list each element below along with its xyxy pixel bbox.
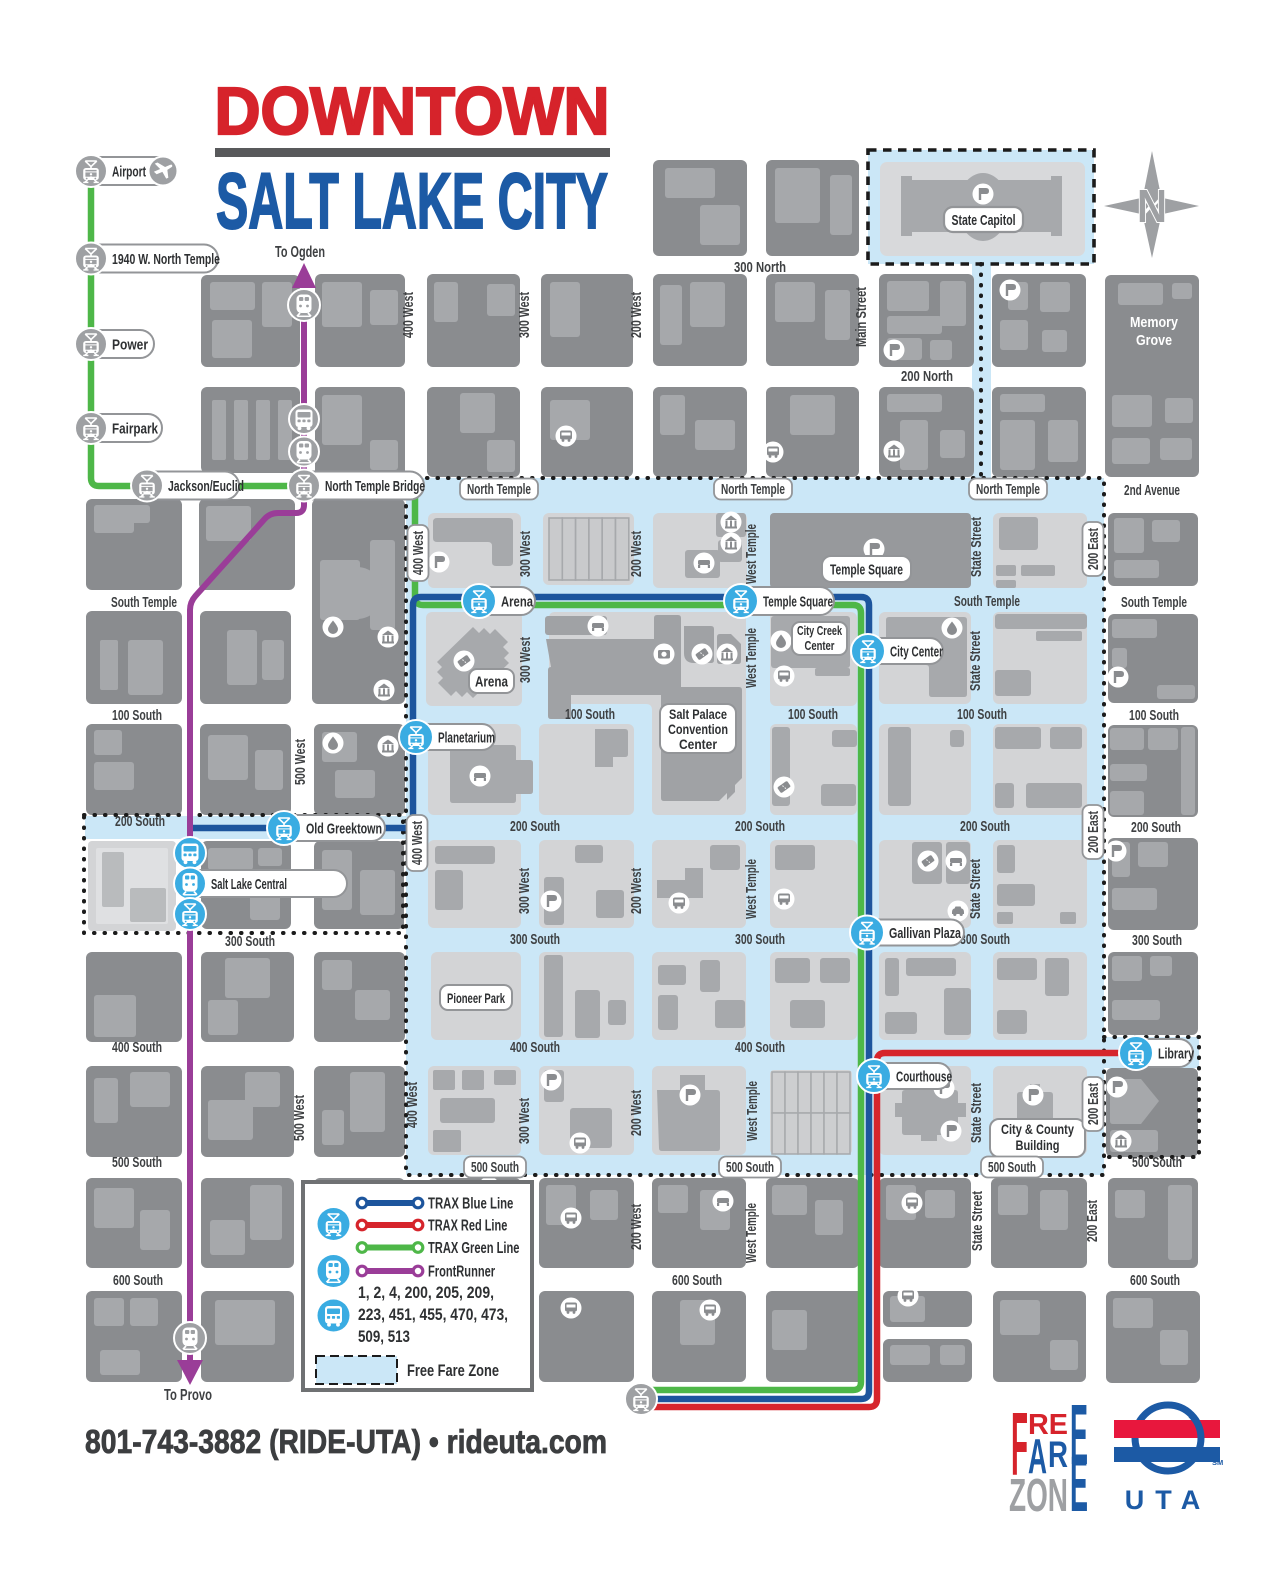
svg-text:Memory: Memory [1130,314,1179,331]
svg-text:100 South: 100 South [565,706,615,723]
svg-text:500 South: 500 South [471,1159,519,1176]
svg-text:300 West: 300 West [516,292,533,338]
svg-text:City Center: City Center [890,644,943,661]
svg-text:South Temple: South Temple [111,594,177,611]
svg-text:200 West: 200 West [628,1090,645,1136]
svg-text:Arena: Arena [501,594,533,611]
svg-text:West Temple: West Temple [743,524,760,584]
svg-text:FrontRunner: FrontRunner [428,1264,495,1281]
svg-text:South Temple: South Temple [1121,594,1187,611]
svg-text:UTA: UTA [1125,1485,1212,1515]
svg-text:200 South: 200 South [960,818,1010,835]
svg-text:300 South: 300 South [960,931,1010,948]
svg-text:600 South: 600 South [672,1272,722,1289]
svg-text:300 South: 300 South [735,931,785,948]
svg-text:500 West: 500 West [291,1095,308,1141]
svg-text:100 South: 100 South [788,706,838,723]
svg-text:1, 2, 4, 200, 205, 209,: 1, 2, 4, 200, 205, 209, [358,1283,494,1302]
svg-text:State Street: State Street [969,1191,986,1251]
svg-text:Center: Center [805,638,835,653]
svg-text:100 South: 100 South [112,707,162,724]
svg-text:300 South: 300 South [225,933,275,950]
svg-text:Free Fare Zone: Free Fare Zone [407,1361,499,1380]
svg-text:Salt Palace: Salt Palace [669,707,727,722]
svg-text:State Street: State Street [967,859,984,919]
svg-text:500 West: 500 West [292,739,309,785]
svg-text:E: E [1070,1439,1088,1528]
svg-text:200 West: 200 West [628,292,645,338]
svg-text:1940 W. North Temple: 1940 W. North Temple [112,251,220,268]
svg-text:Gallivan Plaza: Gallivan Plaza [889,925,961,942]
svg-text:Library: Library [1158,1046,1194,1063]
svg-text:To Ogden: To Ogden [275,244,325,261]
svg-text:West Temple: West Temple [743,859,760,919]
svg-text:400 West: 400 West [409,821,426,865]
svg-text:Building: Building [1016,1138,1060,1153]
svg-text:200 West: 200 West [628,1204,645,1250]
svg-text:200 East: 200 East [1085,811,1102,853]
svg-text:Pioneer Park: Pioneer Park [447,990,505,1006]
svg-text:500 South: 500 South [112,1154,162,1171]
svg-text:Fairpark: Fairpark [112,421,159,438]
svg-text:100 South: 100 South [957,706,1007,723]
svg-text:North Temple: North Temple [467,481,531,498]
svg-text:TRAX Blue Line: TRAX Blue Line [428,1196,514,1213]
svg-text:500 South: 500 South [726,1159,774,1176]
svg-text:Courthouse: Courthouse [896,1069,952,1086]
svg-text:DOWNTOWN: DOWNTOWN [215,74,610,149]
svg-text:400 South: 400 South [735,1039,785,1056]
svg-text:West Temple: West Temple [743,628,760,688]
svg-text:To Provo: To Provo [164,1387,212,1404]
svg-text:Salt Lake Central: Salt Lake Central [211,876,287,893]
svg-text:200 South: 200 South [735,818,785,835]
svg-text:200 North: 200 North [901,368,953,385]
svg-text:Convention: Convention [668,722,728,737]
svg-text:200 East: 200 East [1085,528,1102,570]
svg-text:City & County: City & County [1001,1122,1074,1137]
svg-text:500 South: 500 South [1132,1154,1182,1171]
svg-text:State Street: State Street [968,517,985,577]
svg-text:Old Greektown: Old Greektown [306,821,382,838]
svg-text:300 North: 300 North [734,259,786,276]
svg-text:2nd Avenue: 2nd Avenue [1124,482,1180,499]
svg-text:SM: SM [1212,1458,1223,1467]
svg-text:200 West: 200 West [628,868,645,914]
svg-text:400 South: 400 South [112,1039,162,1056]
svg-text:West Temple: West Temple [743,1203,760,1263]
svg-text:200 West: 200 West [628,531,645,577]
svg-text:Arena: Arena [475,675,509,691]
svg-text:400 South: 400 South [510,1039,560,1056]
svg-text:223, 451, 455, 470, 473,: 223, 451, 455, 470, 473, [358,1305,508,1324]
svg-text:State Capitol: State Capitol [952,212,1016,229]
svg-text:Grove: Grove [1136,332,1172,349]
svg-text:N: N [1137,180,1167,232]
svg-text:100 South: 100 South [1129,707,1179,724]
svg-text:300 South: 300 South [510,931,560,948]
svg-text:500 South: 500 South [988,1159,1036,1176]
svg-text:Temple Square: Temple Square [830,562,903,579]
svg-text:400 West: 400 West [400,292,417,338]
svg-text:State Street: State Street [967,631,984,691]
svg-text:Airport: Airport [112,164,146,181]
svg-text:State Street: State Street [968,1083,985,1143]
svg-text:South Temple: South Temple [954,593,1020,610]
svg-text:Main Street: Main Street [853,287,870,347]
svg-text:509, 513: 509, 513 [358,1327,410,1346]
svg-text:Jackson/Euclid: Jackson/Euclid [168,478,244,495]
svg-text:600 South: 600 South [1130,1272,1180,1289]
svg-text:200 South: 200 South [115,813,165,830]
svg-text:200 South: 200 South [1131,819,1181,836]
svg-text:200 East: 200 East [1084,1200,1101,1242]
svg-text:400 West: 400 West [410,531,427,575]
svg-text:TRAX Green Line: TRAX Green Line [428,1240,520,1257]
svg-text:West Temple: West Temple [744,1081,761,1141]
svg-text:SALT LAKE CITY: SALT LAKE CITY [216,156,608,245]
svg-text:801-743-3882 (RIDE-UTA) • ri: 801-743-3882 (RIDE-UTA) • rideuta.com [85,1423,607,1460]
svg-text:200 South: 200 South [510,818,560,835]
svg-text:North Temple Bridge: North Temple Bridge [325,478,425,495]
svg-text:400 West: 400 West [404,1082,421,1128]
svg-text:300 South: 300 South [1132,932,1182,949]
svg-text:200 East: 200 East [1085,1083,1102,1125]
svg-text:300 West: 300 West [516,868,533,914]
svg-text:300 West: 300 West [517,637,534,683]
svg-text:North Temple: North Temple [721,481,785,498]
svg-text:Center: Center [679,737,718,752]
svg-text:300 West: 300 West [517,531,534,577]
svg-text:North Temple: North Temple [976,481,1040,498]
svg-text:Temple Square: Temple Square [763,594,833,611]
svg-text:300 West: 300 West [516,1098,533,1144]
svg-text:ZON: ZON [1009,1469,1068,1521]
svg-text:City Creek: City Creek [797,623,843,638]
svg-text:TRAX Red Line: TRAX Red Line [428,1218,508,1235]
svg-text:Power: Power [112,337,148,354]
svg-text:Planetarium: Planetarium [438,730,495,747]
svg-text:600 South: 600 South [113,1272,163,1289]
